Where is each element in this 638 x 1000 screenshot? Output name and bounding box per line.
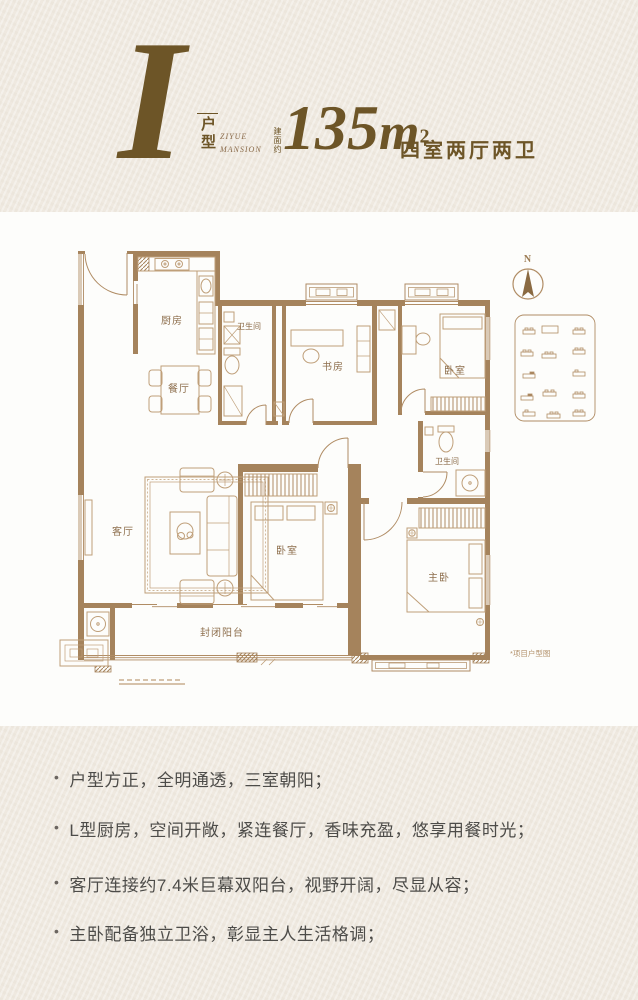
room-label-bedroom2: 卧室	[276, 544, 298, 557]
kitchen-counter-icon	[138, 257, 215, 354]
room-label-study: 书房	[322, 360, 344, 373]
feature-item: •客厅连接约7.4米巨幕双阳台，视野开阔，尽显从容；	[54, 871, 480, 896]
feature-text: 户型方正，全明通透，三室朝阳；	[69, 766, 332, 791]
plan-note: *项目户型图	[510, 648, 550, 658]
project-name-line1: ZIYUE	[220, 131, 280, 144]
room-label-balcony: 封闭阳台	[200, 626, 244, 639]
room-label-master: 主卧	[428, 571, 450, 584]
room-label-bedroom1: 卧室	[444, 364, 466, 377]
master-bed-icon	[407, 508, 485, 626]
project-name-en: ZIYUE MANSION	[220, 131, 280, 157]
feature-text: 客厅连接约7.4米巨幕双阳台，视野开阔，尽显从容；	[69, 871, 479, 896]
balcony-washer-icon	[87, 612, 109, 636]
room-label-dining: 餐厅	[168, 382, 190, 395]
feature-text: 主卧配备独立卫浴，彰显主人生活格调；	[69, 920, 384, 945]
room-label-living: 客厅	[112, 525, 134, 538]
plan-letter: I	[118, 28, 228, 174]
bedroom2-bed-icon	[245, 474, 337, 600]
bullet-icon: •	[54, 766, 59, 788]
bedroom1-bed-icon	[379, 310, 485, 411]
room-label-bathroom1: 卫生间	[237, 321, 261, 331]
doors	[85, 253, 447, 540]
plan-type-label: 户型	[197, 113, 218, 152]
room-label-kitchen: 厨房	[161, 314, 183, 327]
bullet-icon: •	[54, 816, 59, 838]
bullet-icon: •	[54, 920, 59, 942]
feature-text: L型厨房，空间开敞，紧连餐厅，香味充盈，悠享用餐时光；	[69, 816, 534, 841]
feature-item: •L型厨房，空间开敞，紧连餐厅，香味充盈，悠享用餐时光；	[54, 816, 534, 841]
area-prefix-label: 建面约	[272, 127, 283, 154]
legend-mini-map	[515, 315, 595, 421]
bullet-icon: •	[54, 871, 59, 893]
compass-n-label: N	[524, 254, 532, 265]
area-number: 135	[283, 92, 379, 163]
room-layout-label: 四室两厅两卫	[400, 134, 538, 163]
floor-plan-svg: N	[39, 240, 599, 690]
feature-item: •户型方正，全明通透，三室朝阳；	[54, 766, 332, 791]
page: I 户型 ZIYUE MANSION 建面约 135m2 四室两厅两卫	[0, 0, 638, 1000]
bay-windows	[306, 284, 470, 671]
room-label-bathroom2: 卫生间	[435, 456, 459, 466]
feature-item: •主卧配备独立卫浴，彰显主人生活格调；	[54, 920, 384, 945]
project-name-line2: MANSION	[220, 144, 280, 157]
compass-icon: N	[513, 254, 543, 299]
